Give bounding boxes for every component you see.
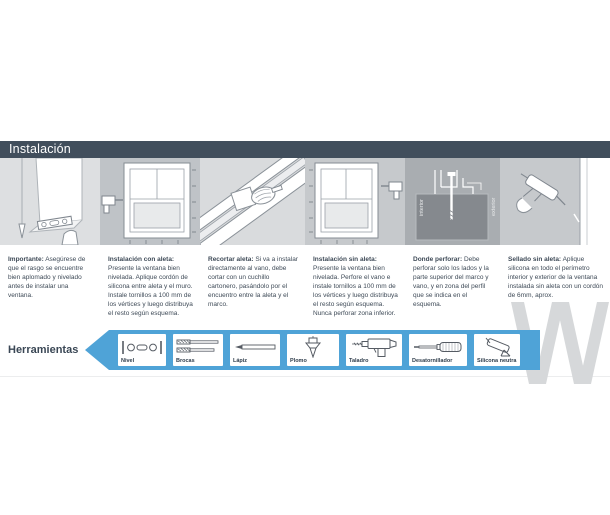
- tool-label: Plomo: [290, 358, 336, 364]
- step-title: Sellado sin aleta:: [508, 256, 561, 263]
- page-title: Instalación: [0, 141, 610, 158]
- drill-bits-icon: [176, 336, 220, 358]
- step-title: Donde perforar:: [413, 256, 462, 263]
- tool-card-nivel: Nivel: [118, 334, 166, 366]
- tool-card-plomo: Plomo: [287, 334, 339, 366]
- illustration-cut-fin: [200, 158, 305, 245]
- installation-guide-poster: Instalación: [0, 0, 610, 515]
- step-title: Instalación con aleta:: [108, 256, 174, 263]
- drill-section-diagram: interior exterior: [405, 158, 500, 245]
- level-plumb-illustration: [0, 158, 100, 245]
- caption-recortar-aleta: Recortar aleta: Si va a instalar directa…: [200, 255, 305, 318]
- caption-instalacion-con-aleta: Instalación con aleta: Presente la venta…: [100, 255, 200, 318]
- exterior-label: exterior: [491, 197, 497, 216]
- tool-label: Taladro: [349, 358, 399, 364]
- illustration-install-with-fin: [100, 158, 200, 245]
- tool-card-brocas: Brocas: [173, 334, 223, 366]
- caulking-window-illustration: [500, 158, 610, 245]
- step-body: Si va a instalar directamente al vano, d…: [208, 256, 298, 308]
- caption-instalacion-sin-aleta: Instalación sin aleta: Presente la venta…: [305, 255, 405, 318]
- tool-label: Nivel: [121, 358, 163, 364]
- caulking-gun-icon: [477, 336, 517, 358]
- caption-donde-perforar: Donde perforar: Debe perforar solo los l…: [405, 255, 500, 318]
- drill-icon: [349, 336, 399, 358]
- illustration-install-without-fin: [305, 158, 405, 245]
- screwdriver-icon: [412, 336, 464, 358]
- step-body: Presente la ventana bien nivelada. Perfo…: [313, 265, 398, 317]
- illustration-level-check: [0, 158, 100, 245]
- tool-label: Brocas: [176, 358, 220, 364]
- step-title: Importante:: [8, 256, 44, 263]
- section-header: Instalación: [0, 141, 610, 158]
- tool-label: Lápiz: [233, 358, 277, 364]
- level-icon: [121, 336, 163, 358]
- pencil-icon: [233, 336, 277, 358]
- caption-importante: Importante: Asegúrese de que el rasgo se…: [0, 255, 100, 318]
- tools-band: Nivel Brocas L: [85, 330, 540, 370]
- interior-label: interior: [419, 199, 425, 216]
- step-title: Recortar aleta:: [208, 256, 254, 263]
- illustration-seal-without-fin: [500, 158, 610, 245]
- plumb-bob-icon: [290, 336, 336, 358]
- step-body: Presente la ventana bien nivelada. Apliq…: [108, 265, 193, 317]
- step-body: Debe perforar solo los lados y la parte …: [413, 256, 489, 308]
- tool-label: Silicona neutra: [477, 358, 517, 364]
- step-title: Instalación sin aleta:: [313, 256, 377, 263]
- step-captions: Importante: Asegúrese de que el rasgo se…: [0, 248, 610, 324]
- caption-sellado-sin-aleta: Sellado sin aleta: Aplique silicona en t…: [500, 255, 610, 318]
- illustration-where-to-drill: interior exterior: [405, 158, 500, 245]
- tool-card-desatornillador: Desatornillador: [409, 334, 467, 366]
- tool-card-taladro: Taladro: [346, 334, 402, 366]
- illustration-strip: interior exterior: [0, 158, 610, 245]
- tools-section-label: Herramientas: [8, 344, 78, 356]
- tool-label: Desatornillador: [412, 358, 464, 364]
- hand-cutter-illustration: [200, 158, 305, 245]
- tool-card-silicona: Silicona neutra: [474, 334, 520, 366]
- tool-card-lapiz: Lápiz: [230, 334, 280, 366]
- window-drill-right-illustration: [305, 158, 405, 245]
- window-drill-left-illustration: [100, 158, 200, 245]
